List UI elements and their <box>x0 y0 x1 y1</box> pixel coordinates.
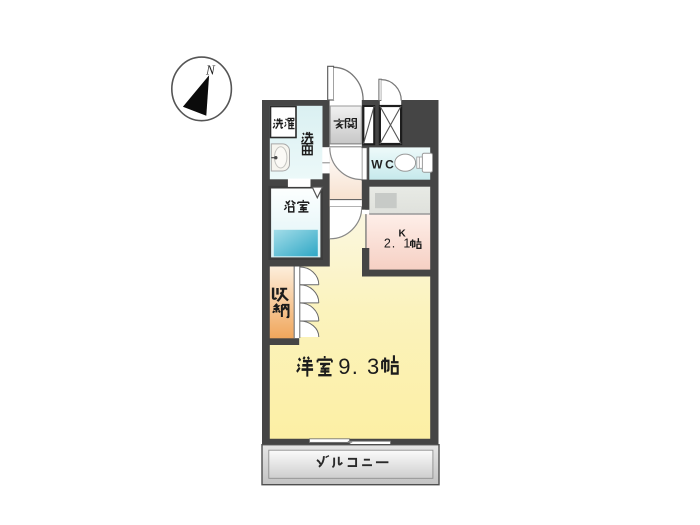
svg-text:.: . <box>392 237 395 251</box>
svg-text:1: 1 <box>403 237 410 251</box>
svg-text:.: . <box>352 354 358 379</box>
svg-text:N: N <box>205 63 216 78</box>
svg-text:2: 2 <box>384 237 391 251</box>
svg-text:3: 3 <box>367 354 379 379</box>
svg-text:9: 9 <box>338 354 350 379</box>
svg-text:WC: WC <box>371 158 396 172</box>
